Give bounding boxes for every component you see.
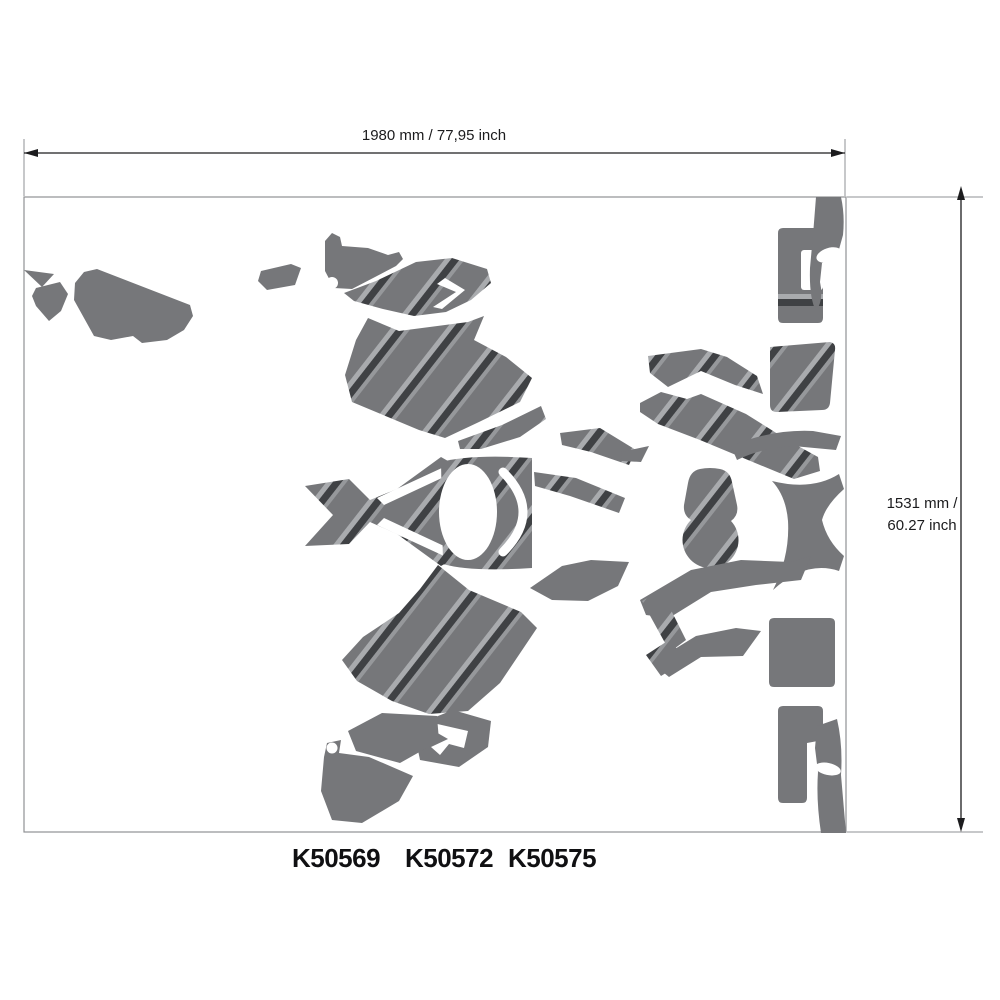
decal-sheet-drawing: 1980 mm / 77,95 inch 1531 mm / 60.27 inc… — [0, 0, 1000, 1000]
decal-piece — [815, 719, 846, 833]
decal-piece — [534, 472, 625, 513]
part-numbers: K50569 K50572 K50575 — [292, 843, 596, 873]
decal-piece — [74, 269, 193, 343]
hole-cutout — [327, 743, 338, 754]
right-height-dimension: 1531 mm / 60.27 inch — [847, 186, 983, 832]
height-dimension-label-line2: 60.27 inch — [887, 517, 956, 534]
right-arrow-icon — [831, 149, 845, 157]
decal-piece — [305, 457, 448, 566]
part-number: K50572 — [405, 843, 493, 873]
decal-piece — [769, 618, 835, 687]
decal-piece — [342, 565, 537, 714]
hole-cutout — [326, 277, 338, 289]
decal-piece — [530, 560, 629, 601]
decal-kit-diagram: 1980 mm / 77,95 inch 1531 mm / 60.27 inc… — [0, 0, 1000, 1000]
decal-piece — [683, 468, 739, 568]
decal-piece — [24, 270, 54, 287]
width-dimension-label: 1980 mm / 77,95 inch — [362, 127, 506, 144]
height-dimension-label-line1: 1531 mm / — [887, 495, 959, 512]
decal-piece — [32, 282, 68, 321]
decal-shapes — [24, 197, 846, 833]
left-arrow-icon — [24, 149, 38, 157]
down-arrow-icon — [957, 818, 965, 832]
part-number: K50575 — [508, 843, 596, 873]
decal-piece — [770, 342, 835, 412]
decal-piece — [258, 264, 301, 290]
decal-piece — [345, 316, 532, 438]
top-width-dimension: 1980 mm / 77,95 inch — [24, 127, 845, 196]
decal-piece — [648, 349, 763, 394]
part-number: K50569 — [292, 843, 380, 873]
up-arrow-icon — [957, 186, 965, 200]
oval-cutout — [439, 464, 497, 560]
